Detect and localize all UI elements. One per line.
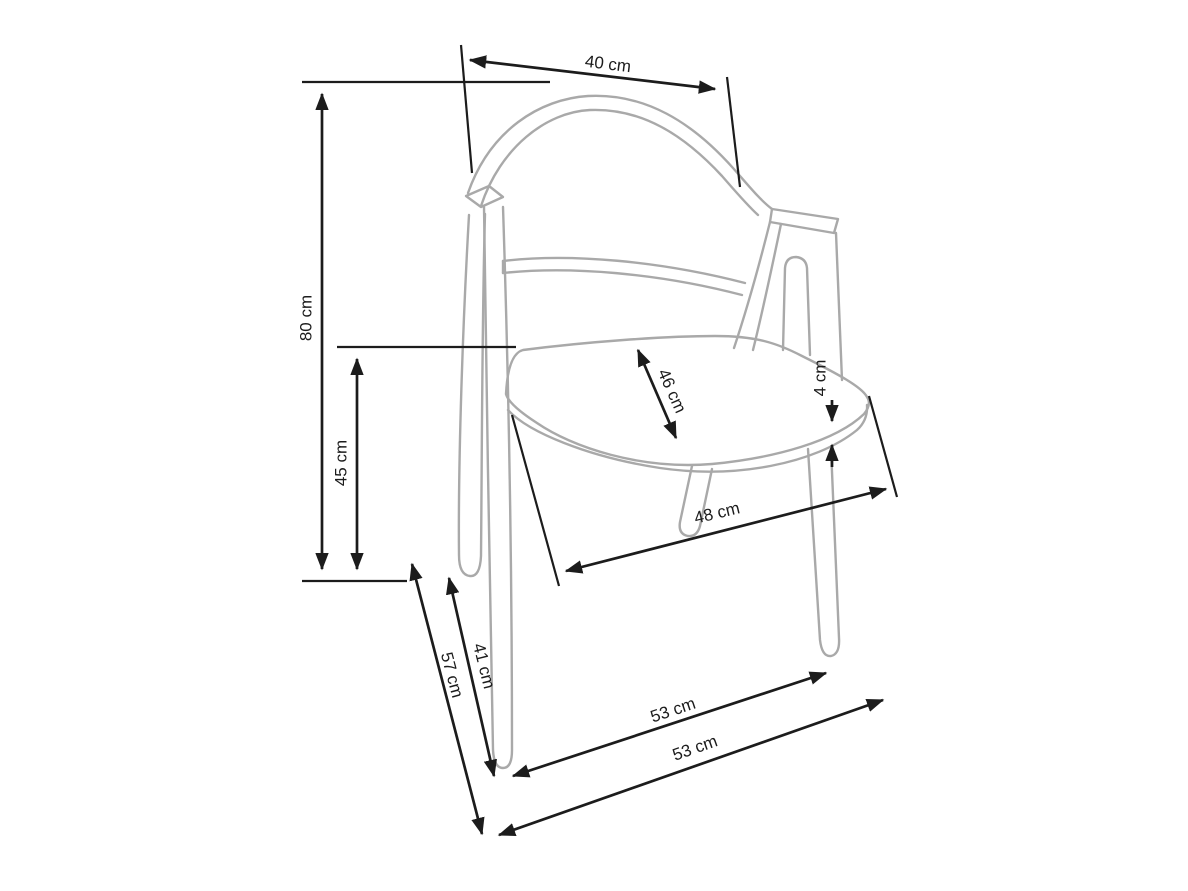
chair-back-panel-left-inner: [753, 224, 781, 350]
chair-back-panel-right: [836, 233, 842, 380]
ext-line-seat-width-right: [869, 396, 897, 497]
chair-dimension-diagram: 40 cm 80 cm 45 cm 46 cm 4 cm 48 cm: [0, 0, 1188, 891]
dimension-outer-leg-depth: 57 cm: [412, 564, 482, 834]
chair-drawing: [459, 96, 869, 768]
dim-label-total-height: 80 cm: [297, 295, 316, 341]
dim-label-seat-depth: 46 cm: [654, 366, 690, 416]
dimension-base-width-lower: 53 cm: [499, 700, 883, 835]
dim-label-seat-thickness: 4 cm: [811, 360, 830, 397]
ext-line-seat-width-left: [512, 415, 559, 586]
chair-back-panel-left-outer: [734, 222, 770, 348]
dim-line-base-width-lower: [499, 700, 883, 835]
dimension-seat-height: 45 cm: [332, 359, 358, 569]
dimension-base-width-upper: 53 cm: [513, 673, 826, 776]
ext-line-top-width-right: [727, 77, 740, 187]
chair-back-panel-cutout: [783, 257, 810, 355]
dimension-top-width: 40 cm: [470, 52, 715, 89]
dimension-seat-width: 48 cm: [566, 489, 886, 571]
dim-label-top-width: 40 cm: [584, 52, 632, 77]
chair-back-right-leg: [808, 448, 839, 656]
dim-label-seat-width: 48 cm: [692, 498, 741, 527]
dimension-annotations: 40 cm 80 cm 45 cm 46 cm 4 cm 48 cm: [297, 45, 898, 835]
dim-line-base-width-upper: [513, 673, 826, 776]
chair-backrest-inner: [481, 110, 758, 215]
ext-line-top-width-left: [461, 45, 472, 173]
chair-front-left-leg: [459, 214, 485, 576]
diagram-svg: 40 cm 80 cm 45 cm 46 cm 4 cm 48 cm: [0, 0, 1188, 891]
dim-label-base-width-upper: 53 cm: [648, 694, 698, 727]
dim-label-seat-height: 45 cm: [332, 440, 351, 486]
dimension-seat-depth: 46 cm: [638, 350, 690, 438]
dimension-total-height: 80 cm: [297, 94, 323, 569]
dim-line-outer-leg-depth: [412, 564, 482, 834]
